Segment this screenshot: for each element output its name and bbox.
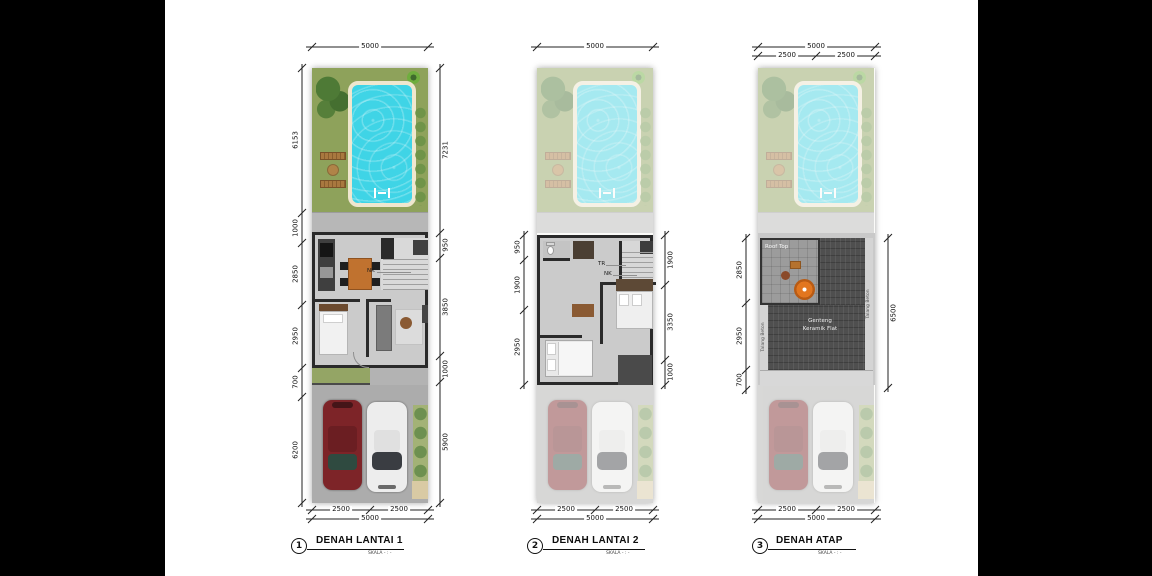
plan-title: DENAH LANTAI 2 (552, 535, 639, 546)
title-underline (307, 549, 404, 550)
plan-number: 1 (296, 541, 302, 551)
dim-label: 1000 (668, 363, 675, 381)
dim-label: 1900 (668, 251, 675, 269)
dim-label: 6500 (891, 304, 898, 322)
dim-label: 2500 (388, 506, 410, 514)
title-underline (543, 549, 645, 550)
plan-number: 2 (532, 541, 538, 551)
dim-label: 2950 (515, 338, 522, 356)
dim-label: 1900 (515, 276, 522, 294)
dim-label: 5000 (805, 515, 827, 523)
dim-label: 1000 (443, 360, 450, 378)
dim-label: 5000 (584, 515, 606, 523)
dim-label: 5000 (359, 43, 381, 51)
plan-number-badge: 1 (291, 538, 307, 554)
dim-label: 5000 (805, 43, 827, 51)
plan2-dimension-lines (515, 40, 680, 530)
dim-label: 6153 (293, 131, 300, 149)
dim-label: 2850 (293, 265, 300, 283)
dim-label: 2500 (330, 506, 352, 514)
dim-label: 5900 (443, 433, 450, 451)
title-underline (768, 549, 856, 550)
dim-label: 950 (515, 240, 522, 253)
dim-label: 2500 (835, 506, 857, 514)
dim-label: 1000 (293, 219, 300, 237)
scale-note: SKALA - : - (606, 551, 630, 556)
letterbox-right (978, 0, 1152, 576)
dimension-lines (742, 43, 892, 523)
plan-number: 3 (757, 541, 763, 551)
scale-note: SKALA - : - (368, 551, 392, 556)
dim-label: 7231 (443, 141, 450, 159)
letterbox-left (0, 0, 165, 576)
dim-label: 700 (293, 375, 300, 388)
dim-label: 3350 (668, 313, 675, 331)
dim-label: 2950 (293, 327, 300, 345)
dim-label: 2950 (737, 327, 744, 345)
dim-label: 3850 (443, 298, 450, 316)
plan-title: DENAH LANTAI 1 (316, 535, 403, 546)
dimension-lines (298, 43, 444, 523)
dim-label: 2500 (835, 52, 857, 60)
dim-label: 950 (443, 238, 450, 251)
plan-title: DENAH ATAP (776, 535, 843, 546)
dim-label: 2500 (776, 52, 798, 60)
dim-label: 2500 (555, 506, 577, 514)
plan3-dimension-lines (738, 40, 908, 530)
dim-label: 5000 (359, 515, 381, 523)
plan1-dimension-lines (290, 40, 460, 530)
dim-label: 700 (737, 373, 744, 386)
drawing-sheet: NK (0, 0, 1152, 576)
dim-label: 6200 (293, 441, 300, 459)
dimension-lines (520, 43, 669, 523)
dim-label: 2500 (613, 506, 635, 514)
dim-label: 2500 (776, 506, 798, 514)
scale-note: SKALA - : - (818, 551, 842, 556)
plan-number-badge: 3 (752, 538, 768, 554)
dim-label: 5000 (584, 43, 606, 51)
dim-label: 2850 (737, 261, 744, 279)
plan-number-badge: 2 (527, 538, 543, 554)
